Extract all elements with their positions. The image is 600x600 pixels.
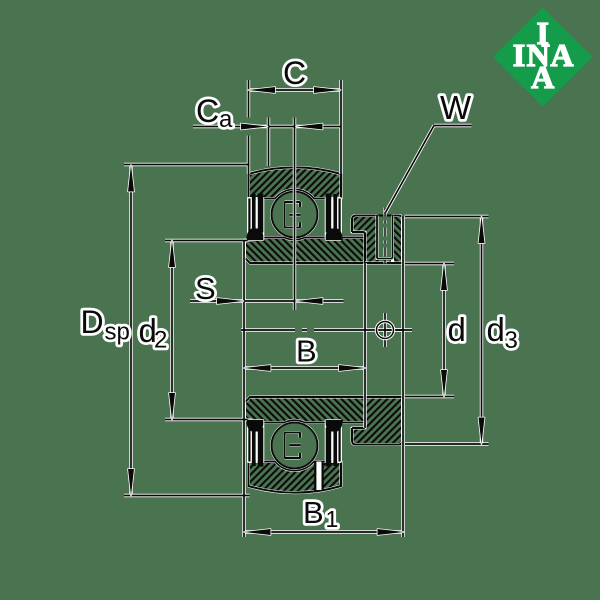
svg-text:A: A xyxy=(531,59,554,95)
svg-text:I: I xyxy=(513,37,525,73)
